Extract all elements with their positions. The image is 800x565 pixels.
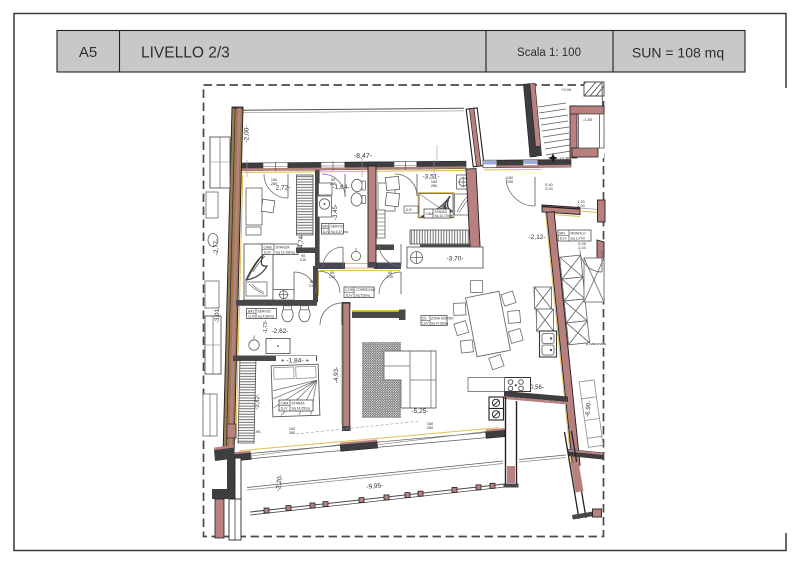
svg-text:280: 280 xyxy=(431,184,437,188)
svg-text:1LIV: 1LIV xyxy=(406,208,413,212)
svg-text:SERVIZI: SERVIZI xyxy=(258,310,271,314)
svg-text:-90-: -90- xyxy=(255,430,262,434)
svg-text:Sq 1,47m: Sq 1,47m xyxy=(571,237,586,241)
svg-text:280: 280 xyxy=(427,426,433,430)
svg-text:Sq 5,6mq: Sq 5,6mq xyxy=(356,293,371,297)
svg-text:+ -1,84- +: + -1,84- + xyxy=(281,358,309,365)
svg-text:CAM.: CAM. xyxy=(281,402,290,406)
svg-text:ZONA GIORNO: ZONA GIORNO xyxy=(431,317,454,321)
svg-text:CAM.: CAM. xyxy=(264,245,273,249)
svg-text:MONOLO: MONOLO xyxy=(571,232,586,236)
svg-text:CORRIDOIO: CORRIDOIO xyxy=(356,288,376,292)
svg-text:LIVELLO 2/3: LIVELLO 2/3 xyxy=(141,45,230,62)
svg-text:p.balconata: p.balconata xyxy=(586,342,607,346)
svg-text:-3,45-: -3,45- xyxy=(332,204,339,220)
svg-text:Sq 14,25mq: Sq 14,25mq xyxy=(292,407,310,411)
svg-text:1LIV: 1LIV xyxy=(264,250,272,254)
svg-text:-4,93-: -4,93- xyxy=(333,367,340,383)
svg-text:MN: MN xyxy=(560,232,566,236)
svg-text:-3,01-: -3,01- xyxy=(214,307,221,323)
svg-text:210: 210 xyxy=(309,284,315,288)
svg-text:Sq 4,37 mq: Sq 4,37 mq xyxy=(331,230,348,234)
svg-text:280: 280 xyxy=(271,182,277,186)
svg-text:SUN = 108 mq: SUN = 108 mq xyxy=(632,45,724,61)
svg-text:-1,73-: -1,73- xyxy=(263,320,269,333)
svg-text:-2,77-: -2,77- xyxy=(213,239,220,255)
svg-text:280: 280 xyxy=(289,431,295,435)
svg-text:1LIV: 1LIV xyxy=(422,321,429,325)
svg-text:1LIV: 1LIV xyxy=(281,407,289,411)
svg-text:210: 210 xyxy=(300,258,306,262)
svg-text:1LIV: 1LIV xyxy=(248,315,256,319)
svg-text:Sq 4,50mq: Sq 4,50mq xyxy=(258,315,275,319)
svg-text:-2,00-: -2,00- xyxy=(244,126,251,143)
svg-text:1LIV: 1LIV xyxy=(560,237,568,241)
svg-text:230: 230 xyxy=(507,180,513,184)
svg-text:0,56-: 0,56- xyxy=(530,385,544,391)
svg-text:Sq 47,66mq: Sq 47,66mq xyxy=(431,321,448,325)
svg-text:210: 210 xyxy=(329,275,335,279)
svg-text:BA1: BA1 xyxy=(323,225,330,229)
svg-text:2,00: 2,00 xyxy=(545,187,552,191)
svg-text:-2,12-: -2,12- xyxy=(529,234,546,241)
svg-text:-3,70-: -3,70- xyxy=(447,256,464,263)
svg-text:+2.85: +2.85 xyxy=(559,156,571,161)
svg-text:1LIV: 1LIV xyxy=(323,230,331,234)
svg-text:-1,50: -1,50 xyxy=(583,117,593,122)
svg-text:STANZA: STANZA xyxy=(292,402,306,406)
svg-text:2,43: 2,43 xyxy=(578,246,585,250)
svg-text:ZG: ZG xyxy=(422,317,427,321)
svg-text:Scala 1: 100: Scala 1: 100 xyxy=(517,47,581,59)
svg-text:-8,47-: -8,47- xyxy=(354,153,373,160)
svg-text:A5: A5 xyxy=(79,44,97,61)
svg-text:BA2: BA2 xyxy=(248,310,255,314)
svg-text:Sq 10,77mq: Sq 10,77mq xyxy=(435,214,452,218)
svg-text:2,00: 2,00 xyxy=(577,204,584,208)
svg-text:210: 210 xyxy=(387,275,393,279)
svg-text:CAM.: CAM. xyxy=(426,212,435,216)
svg-text:Sq 11,99mq: Sq 11,99mq xyxy=(276,250,295,254)
svg-text:-3,42-: -3,42- xyxy=(254,394,261,410)
svg-text:280: 280 xyxy=(330,182,336,186)
svg-text:-2,62-: -2,62- xyxy=(272,328,289,335)
svg-text:-5,25-: -5,25- xyxy=(412,408,429,415)
svg-text:COR.: COR. xyxy=(346,288,355,292)
svg-text:SERVIZI: SERVIZI xyxy=(331,225,344,229)
svg-text:1LIV: 1LIV xyxy=(346,293,354,297)
svg-text:+2.00: +2.00 xyxy=(561,87,572,92)
svg-text:STANZA: STANZA xyxy=(276,245,291,249)
